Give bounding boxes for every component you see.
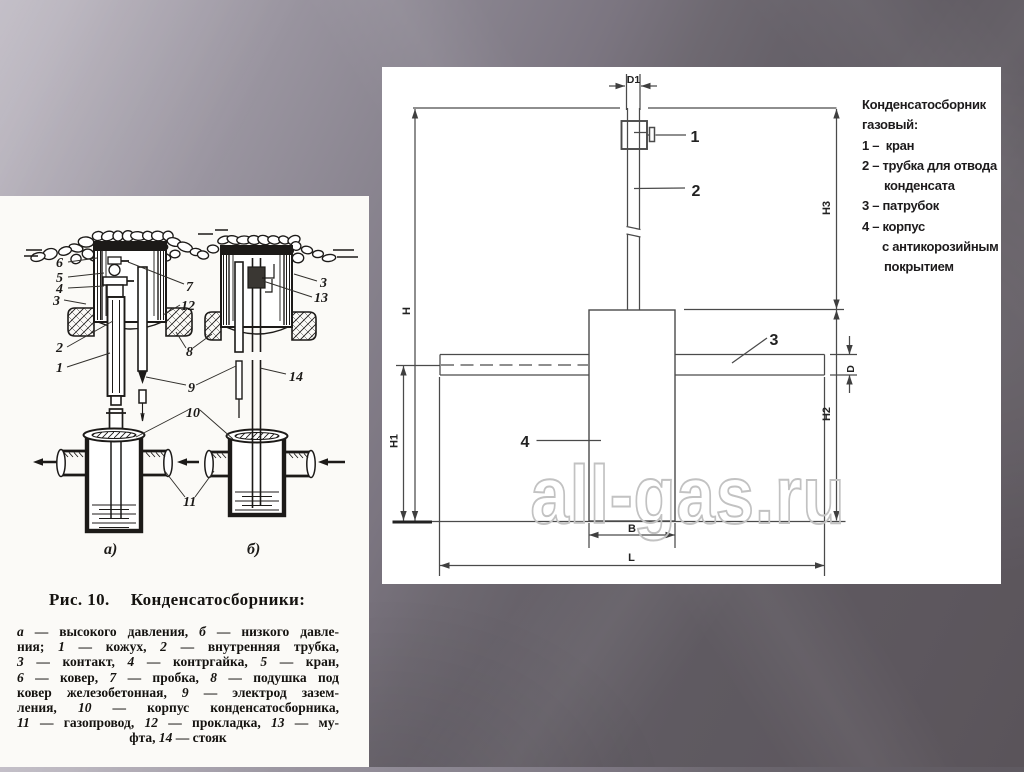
svg-text:4: 4 (521, 434, 530, 451)
svg-text:1: 1 (691, 129, 700, 146)
svg-text:11: 11 (183, 495, 196, 510)
svg-text:D: D (845, 365, 857, 373)
svg-text:12: 12 (181, 299, 195, 314)
svg-text:1: 1 (56, 361, 63, 376)
svg-text:3: 3 (319, 276, 327, 291)
svg-text:all-gas.ru: all-gas.ru (531, 450, 846, 541)
svg-text:2: 2 (692, 183, 701, 200)
svg-text:14: 14 (289, 370, 303, 385)
svg-text:H3: H3 (821, 201, 833, 215)
svg-text:H2: H2 (821, 407, 833, 421)
svg-text:7: 7 (186, 280, 194, 295)
svg-text:8: 8 (186, 345, 193, 360)
svg-text:13: 13 (314, 291, 328, 306)
svg-text:3: 3 (52, 294, 60, 309)
svg-text:б): б) (247, 541, 260, 558)
svg-text:H1: H1 (389, 434, 401, 448)
svg-text:9: 9 (188, 381, 195, 396)
svg-text:D1: D1 (627, 74, 641, 86)
svg-text:L: L (628, 552, 635, 564)
svg-text:H: H (401, 307, 413, 315)
svg-text:2: 2 (55, 341, 63, 356)
svg-text:а): а) (104, 541, 117, 558)
svg-text:3: 3 (770, 332, 779, 349)
svg-text:6: 6 (56, 256, 63, 271)
svg-text:10: 10 (186, 406, 200, 421)
